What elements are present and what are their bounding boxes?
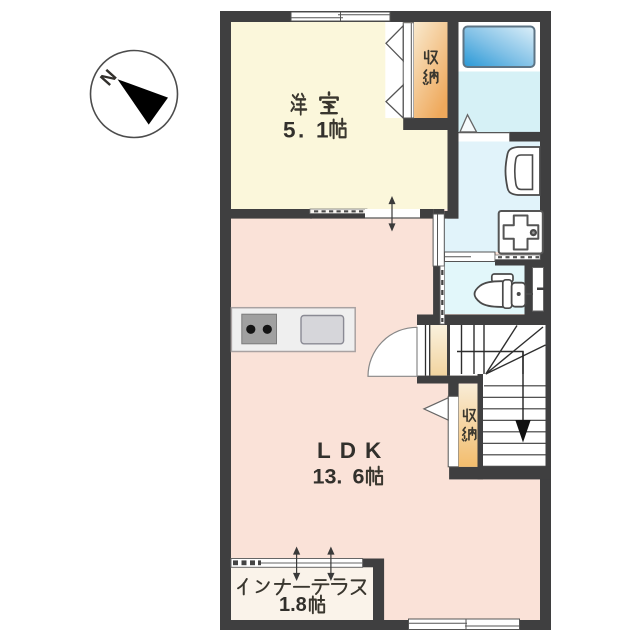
svg-text:.: . bbox=[298, 118, 304, 143]
svg-text:6: 6 bbox=[353, 465, 365, 489]
svg-text:13.: 13. bbox=[313, 465, 343, 489]
svg-text:1.8: 1.8 bbox=[279, 594, 307, 616]
svg-text:1: 1 bbox=[316, 118, 329, 143]
svg-text:5: 5 bbox=[283, 118, 296, 143]
svg-text:LDK: LDK bbox=[317, 438, 390, 463]
